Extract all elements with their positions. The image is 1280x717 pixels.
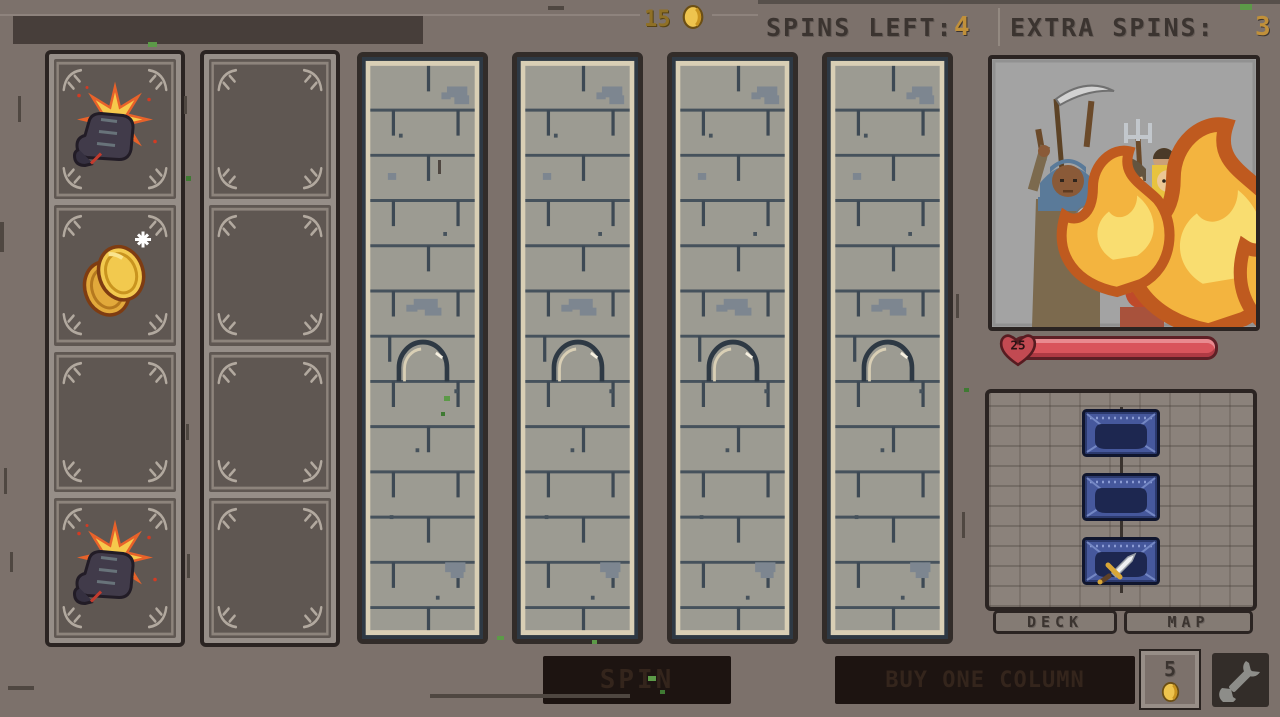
deck-card-3 [1082, 537, 1160, 585]
column-cost-box: 5 [1139, 649, 1201, 710]
crack-decoration [548, 6, 564, 10]
corner-flourish-icon [209, 352, 331, 492]
gold-coin-icon [1161, 682, 1180, 702]
enemy-health-bar: 25 [998, 332, 1224, 366]
deck-preview-panel [985, 389, 1257, 611]
locked-column-2 [512, 52, 643, 644]
game-screen: 15 SPINS LEFT: 4 EXTRA SPINS: 3 [0, 0, 1280, 717]
fist-attack-symbol-icon [65, 72, 165, 187]
buy-one-column-button[interactable]: BUY ONE COLUMN [835, 656, 1135, 704]
slot-cell-empty [209, 498, 331, 638]
slot-column-1 [45, 50, 185, 647]
slot-cell-empty [54, 352, 176, 492]
slot-cell-punch [54, 498, 176, 638]
locked-column-3 [667, 52, 798, 644]
spins-panel: SPINS LEFT: 4 EXTRA SPINS: 3 [758, 0, 1280, 50]
sword-card-icon [1082, 537, 1160, 585]
moss-decoration [497, 636, 504, 640]
brick-wall-icon [362, 57, 483, 639]
moss-decoration [592, 640, 597, 644]
corner-flourish-icon [54, 352, 176, 492]
moss-decoration [441, 412, 445, 416]
slot-cell-punch [54, 59, 176, 199]
slot-cell-coins [54, 205, 176, 345]
moss-decoration [660, 690, 665, 694]
topbar-line-right [712, 14, 758, 16]
brick-wall-icon [672, 57, 793, 639]
column-cost-value: 5 [1164, 657, 1176, 681]
crack-decoration [8, 686, 34, 690]
spins-divider [998, 8, 1000, 46]
slot-cell-empty [209, 59, 331, 199]
deck-card-1 [1082, 409, 1160, 457]
moss-decoration [1240, 4, 1252, 10]
slot-cell-empty [209, 352, 331, 492]
crack-decoration [438, 160, 441, 174]
extra-spins-value: 3 [1255, 12, 1271, 42]
slot-cell-empty [209, 205, 331, 345]
locked-column-1 [357, 52, 488, 644]
moss-decoration [186, 176, 191, 181]
health-bar-fill [1012, 336, 1218, 360]
crack-decoration [4, 468, 7, 494]
crack-decoration [0, 222, 4, 252]
settings-button[interactable] [1212, 653, 1269, 707]
slot-column-2 [200, 50, 340, 647]
top-progress-bar [13, 16, 423, 44]
crack-decoration [187, 554, 190, 578]
map-tab-button[interactable]: MAP [1124, 610, 1253, 634]
angry-mob-image [992, 59, 1256, 327]
crack-decoration [186, 424, 189, 440]
heart-icon: 25 [998, 332, 1038, 368]
crack-decoration [962, 512, 965, 538]
enemy-hp-text: 25 [1010, 337, 1025, 352]
crack-decoration [18, 96, 21, 122]
coin-count: 15 [644, 7, 671, 32]
extra-spins-label: EXTRA SPINS: [1010, 13, 1215, 42]
locked-column-4 [822, 52, 953, 644]
deck-tab-button[interactable]: DECK [993, 610, 1117, 634]
fist-attack-symbol-icon [65, 510, 165, 625]
gold-coins-symbol-icon [65, 218, 165, 333]
crack-decoration [430, 694, 630, 698]
corner-flourish-icon [209, 59, 331, 199]
card-back-icon [1082, 473, 1160, 521]
corner-flourish-icon [209, 205, 331, 345]
card-back-icon [1082, 409, 1160, 457]
spins-left-value: 4 [954, 12, 970, 42]
brick-wall-icon [827, 57, 948, 639]
spins-left-label: SPINS LEFT: [766, 13, 954, 42]
crack-decoration [10, 552, 13, 572]
deck-card-2 [1082, 473, 1160, 521]
crack-decoration [184, 96, 187, 114]
crack-decoration [956, 294, 959, 318]
corner-flourish-icon [209, 498, 331, 638]
moss-decoration [148, 42, 157, 47]
brick-wall-icon [517, 57, 638, 639]
gold-coin-icon [682, 5, 704, 29]
wrench-icon [1219, 658, 1263, 702]
moss-decoration [444, 396, 450, 401]
enemy-portrait-frame [988, 55, 1260, 331]
moss-decoration [964, 388, 969, 392]
moss-decoration [648, 676, 656, 681]
